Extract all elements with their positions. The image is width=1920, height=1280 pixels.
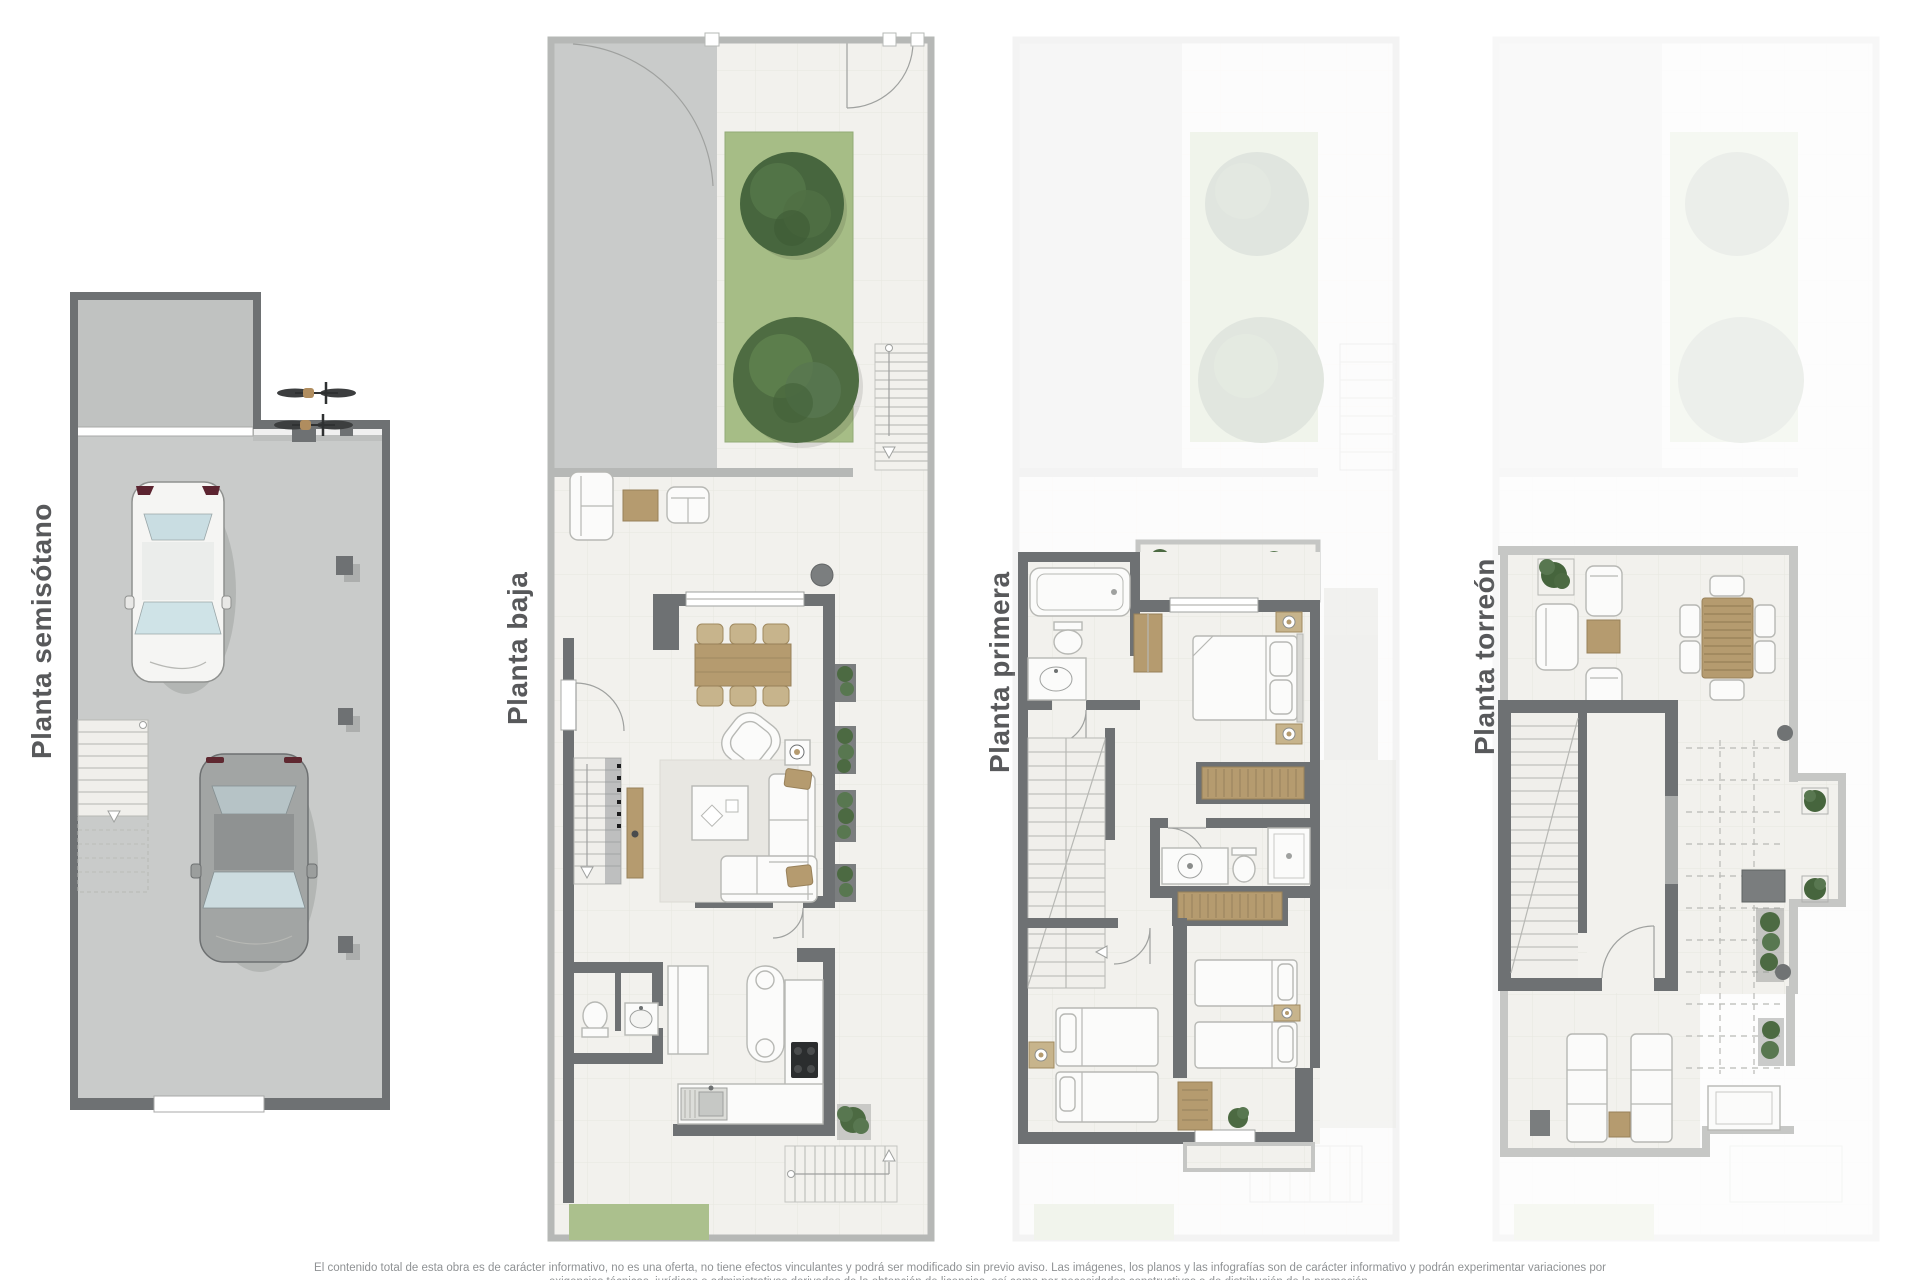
floorplans-sheet: Planta semisótano [0, 0, 1920, 1280]
car-gray-icon [191, 754, 318, 972]
single-bed [1195, 1022, 1297, 1068]
chimney [1742, 870, 1785, 902]
double-bed [1193, 634, 1303, 722]
planter-icon [837, 1104, 871, 1140]
garden [725, 132, 863, 448]
nightstand [1029, 1042, 1054, 1068]
single-bed [1056, 1072, 1158, 1122]
skylight [1708, 1086, 1780, 1130]
disclaimer-text: El contenido total de esta obra es de ca… [314, 1262, 1606, 1280]
exterior-stairs [875, 344, 931, 470]
bathtub-icon [1030, 568, 1130, 616]
car-white-icon [125, 482, 236, 694]
nightstand [1274, 1005, 1300, 1021]
floorplan-baja-drawing [545, 28, 937, 1250]
rear-balcony [1185, 1144, 1313, 1170]
garage-door [76, 427, 253, 436]
closet [1178, 1082, 1212, 1130]
toilet-icon [1054, 622, 1082, 654]
disclaimer-line-2: exigencias técnicas, jurídicas o adminis… [314, 1276, 1606, 1280]
coffee-table [692, 786, 748, 840]
plan-baja [545, 28, 937, 1250]
stair-enclosure [1498, 700, 1678, 993]
disclaimer-line-1: El contenido total de esta obra es de ca… [314, 1262, 1606, 1276]
closet [1196, 762, 1310, 804]
floorplan-primera-drawing [1010, 28, 1402, 1250]
floorplan-torreon-drawing [1490, 28, 1882, 1250]
cooktop-icon [791, 1042, 818, 1078]
toilet-icon [582, 1002, 608, 1037]
sink-icon [625, 1003, 658, 1035]
floorplan-semisotano-drawing [70, 230, 390, 1140]
closet [1172, 886, 1288, 926]
plan-primera [1010, 28, 1402, 1250]
tower-floor [1498, 546, 1846, 1157]
planter-icon [811, 564, 833, 586]
plan-torreon [1490, 28, 1882, 1250]
dining-table [695, 624, 791, 706]
kitchen-sink-icon [681, 1086, 727, 1121]
interior-stairs [574, 758, 621, 884]
nightstand [1276, 612, 1302, 632]
single-bed [1056, 1008, 1158, 1066]
nightstand [1276, 724, 1302, 744]
stairs [1028, 738, 1107, 988]
single-bed [1195, 960, 1297, 1006]
plan-semisotano [70, 230, 390, 1140]
plan-label-baja: Planta baja [502, 553, 538, 743]
first-floor [1018, 542, 1320, 1170]
back-stairs [785, 1146, 897, 1202]
lawn-strip [569, 1204, 709, 1240]
driveway [551, 40, 717, 472]
closet [668, 966, 708, 1054]
planter-icon [1530, 1110, 1550, 1136]
plan-label-semisotano: Planta semisótano [26, 497, 62, 765]
sink-icon [1028, 658, 1086, 700]
